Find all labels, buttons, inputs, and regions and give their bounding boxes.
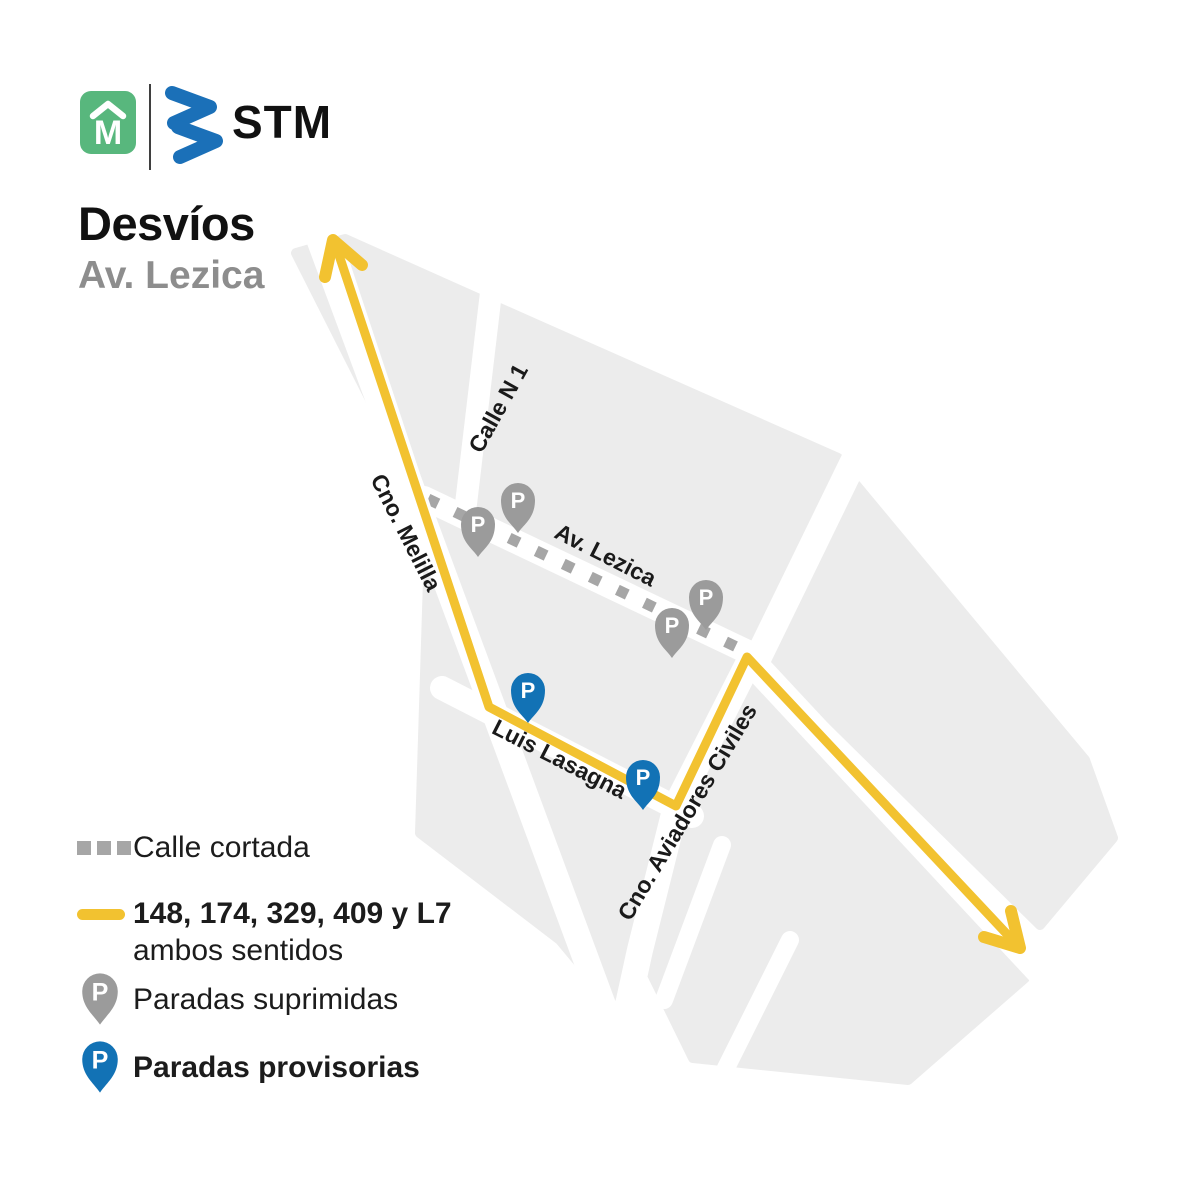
provisional-stop-pin-icon: P	[77, 1040, 133, 1095]
pin-p-label: P	[521, 678, 536, 703]
pin-p-label: P	[699, 585, 714, 610]
legend-provisional-label: Paradas provisorias	[133, 1051, 420, 1085]
stm-wordmark: STM	[232, 95, 332, 149]
closed-street-dash-icon	[77, 841, 133, 855]
legend-item-closed-street: Calle cortada	[77, 831, 310, 865]
suppressed-stop-pin-icon: P	[77, 972, 133, 1027]
pin-p-label: P	[471, 512, 486, 537]
legend-closed-street-label: Calle cortada	[133, 831, 310, 865]
pin-p-label: P	[92, 1047, 109, 1075]
pin-p-label: P	[665, 613, 680, 638]
legend-suppressed-label: Paradas suprimidas	[133, 983, 398, 1017]
route-line-icon	[77, 909, 133, 920]
legend-item-provisional-stops: P Paradas provisorias	[77, 1040, 420, 1095]
legend-routes-note: ambos sentidos	[133, 934, 452, 968]
page-subtitle: Av. Lezica	[78, 254, 264, 298]
stm-logo-icon	[165, 82, 229, 172]
legend-routes-label: 148, 174, 329, 409 y L7	[133, 897, 452, 931]
page-title: Desvíos	[78, 196, 255, 251]
pin-p-label: P	[636, 765, 651, 790]
legend-item-suppressed-stops: P Paradas suprimidas	[77, 972, 398, 1027]
legend-item-routes: 148, 174, 329, 409 y L7 ambos sentidos	[77, 897, 452, 968]
detour-notice: P P P P P P	[0, 0, 1200, 1199]
pin-p-label: P	[92, 979, 109, 1007]
logo-divider	[149, 84, 151, 170]
pin-p-label: P	[511, 488, 526, 513]
montevideo-logo-icon: M	[80, 91, 136, 154]
montevideo-logo-letter: M	[94, 114, 122, 152]
